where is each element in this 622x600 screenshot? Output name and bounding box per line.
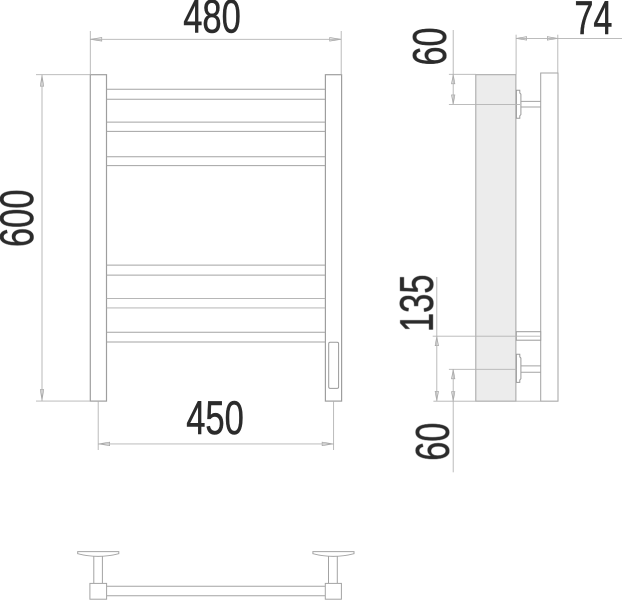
svg-text:74: 74: [574, 0, 612, 44]
svg-text:135: 135: [389, 274, 443, 332]
svg-text:600: 600: [0, 189, 43, 247]
svg-text:60: 60: [406, 423, 459, 461]
svg-text:480: 480: [183, 0, 241, 43]
svg-text:60: 60: [403, 27, 456, 65]
svg-text:450: 450: [186, 390, 244, 444]
